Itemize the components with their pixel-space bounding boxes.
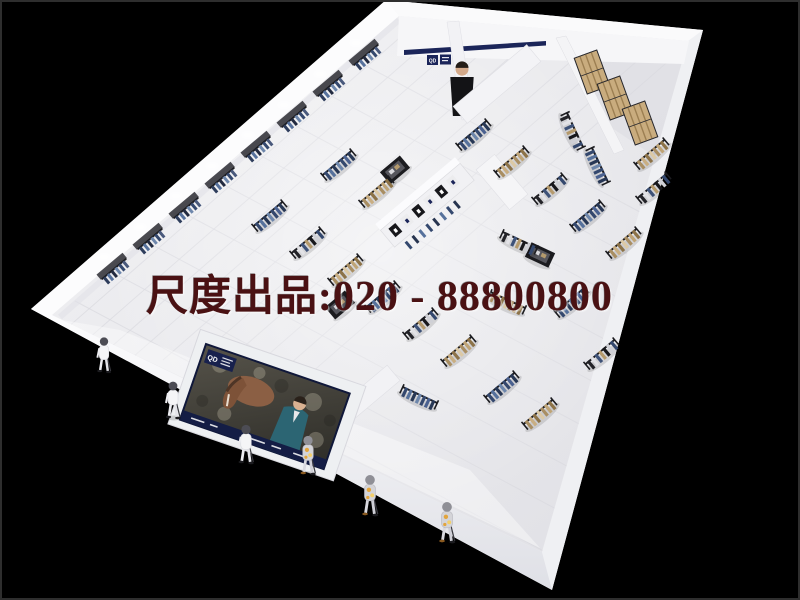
spotlight — [314, 72, 326, 77]
spotlight — [350, 41, 362, 46]
spotlight — [134, 225, 146, 230]
watermark-text: 尺度出品:020 - 88800800 — [146, 262, 613, 323]
spotlight — [278, 103, 290, 108]
brand-logo-text: QD — [429, 59, 437, 65]
store-render-image: QD — [0, 0, 800, 600]
spotlight — [206, 164, 218, 169]
spotlight — [242, 133, 254, 138]
spotlight — [170, 194, 182, 199]
spotlight — [98, 255, 110, 260]
